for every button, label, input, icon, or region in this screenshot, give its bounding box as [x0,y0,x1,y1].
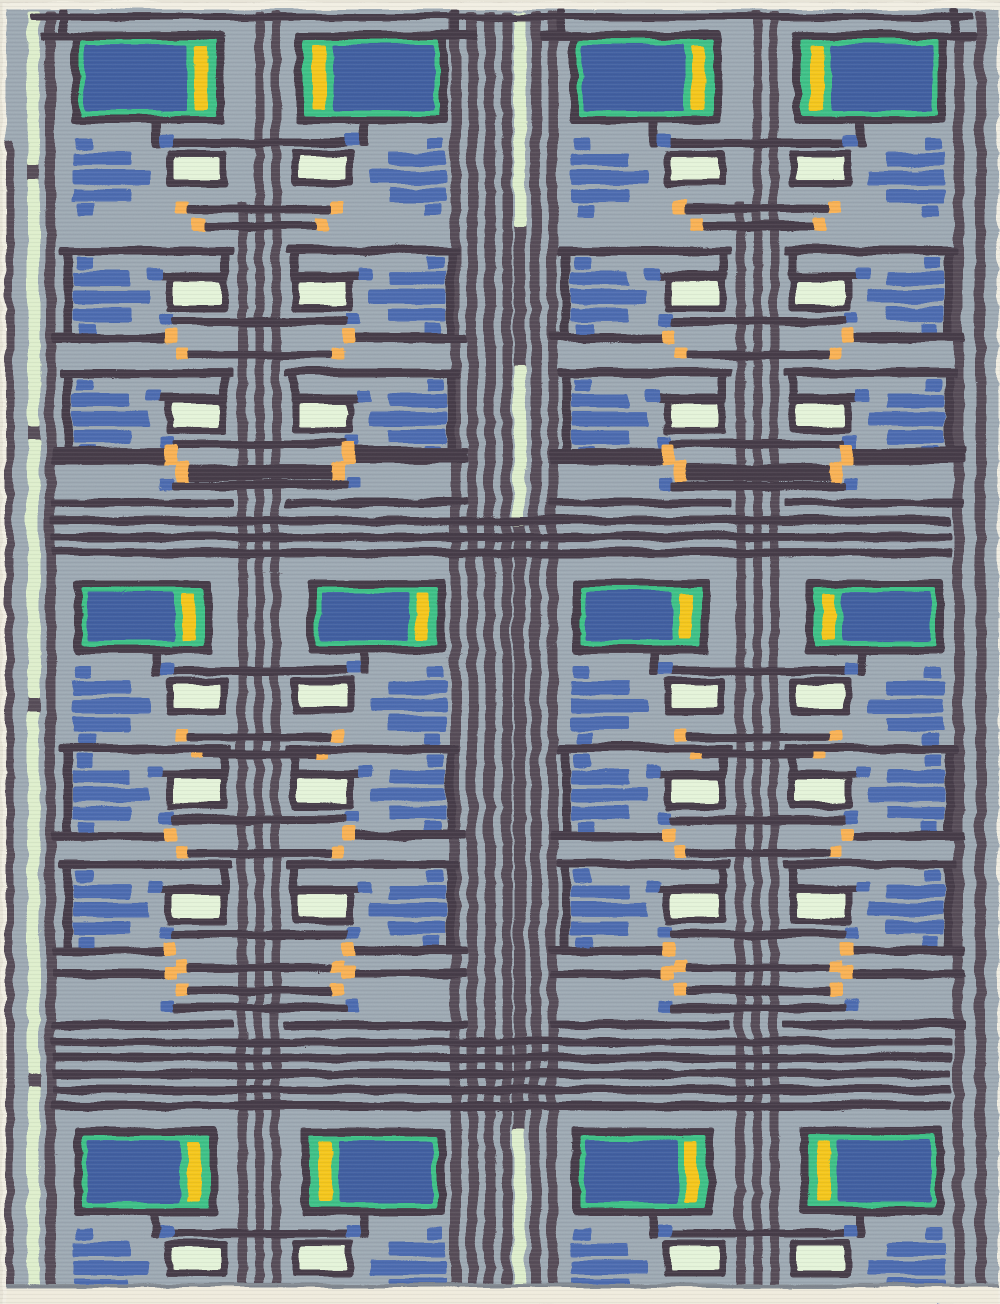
rug-photo [0,0,1000,1304]
rug-pattern-svg [0,0,1000,1304]
